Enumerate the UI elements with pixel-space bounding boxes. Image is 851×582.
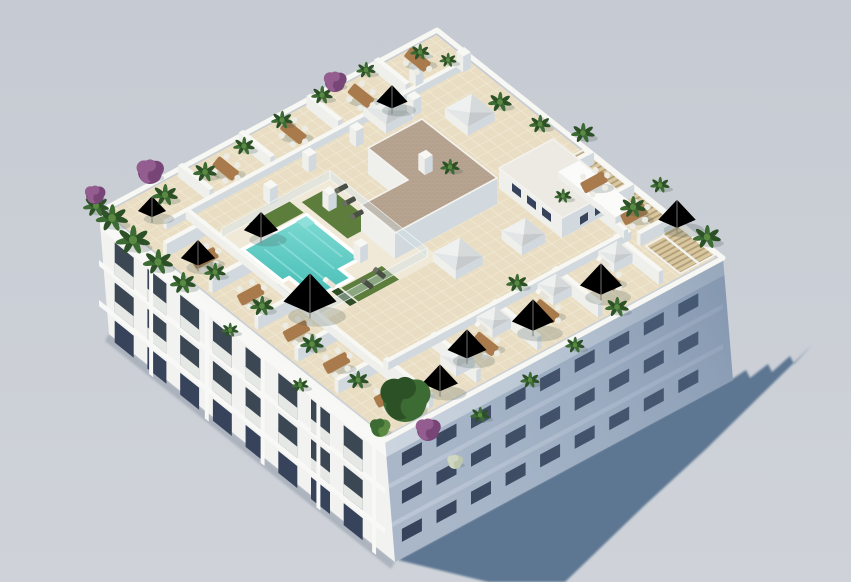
- palm-crown: [259, 303, 265, 309]
- palm-crown: [228, 328, 232, 332]
- palm-crown: [212, 269, 217, 274]
- chair: [249, 279, 255, 285]
- chair: [426, 66, 432, 72]
- facade-pillar: [316, 399, 320, 510]
- chair: [604, 172, 610, 178]
- parasol-shadow: [517, 325, 563, 341]
- palm-crown: [298, 383, 302, 387]
- chair: [323, 354, 329, 360]
- shrub-tuft: [423, 418, 434, 429]
- palm-crown: [580, 130, 586, 136]
- chair: [302, 138, 308, 144]
- chair: [494, 337, 500, 343]
- palm-crown: [561, 194, 565, 198]
- parasol-shadow: [249, 233, 286, 246]
- palm-crown: [180, 280, 186, 286]
- palm-crown: [537, 121, 542, 126]
- chair: [234, 162, 240, 168]
- palm-crown: [418, 50, 423, 55]
- chair: [222, 178, 228, 184]
- palm-crown: [129, 236, 137, 244]
- chair: [302, 126, 308, 132]
- palm-crown: [309, 341, 315, 347]
- chair: [555, 317, 561, 323]
- palm-crown: [202, 169, 208, 175]
- palm-crown: [154, 258, 161, 265]
- chair: [602, 185, 608, 191]
- shrub-tuft: [144, 159, 156, 171]
- chair: [590, 191, 596, 197]
- palm-crown: [364, 68, 369, 73]
- chair: [335, 348, 341, 354]
- palm-crown: [614, 304, 620, 310]
- chair: [373, 388, 379, 394]
- chair: [332, 372, 338, 378]
- chair: [282, 322, 288, 328]
- palm-crown: [573, 343, 578, 348]
- facade-pillar: [261, 355, 265, 466]
- chair: [370, 89, 376, 95]
- chair: [261, 284, 267, 290]
- chair: [223, 153, 229, 159]
- palm-crown: [162, 192, 168, 198]
- chair: [403, 60, 409, 66]
- chair: [359, 80, 365, 86]
- chair: [344, 365, 350, 371]
- architectural-render: Apartment building rooftop – aerial 3D r…: [0, 0, 851, 582]
- render-image: Apartment building rooftop – aerial 3D r…: [0, 0, 851, 582]
- parasol-shadow: [453, 354, 496, 369]
- chair: [237, 286, 243, 292]
- shrub-tuft: [330, 72, 340, 82]
- palm-crown: [630, 204, 636, 210]
- chair: [494, 350, 500, 356]
- palm-crown: [108, 214, 116, 222]
- palm-crown: [528, 378, 533, 383]
- chair: [370, 102, 376, 108]
- chair: [292, 340, 298, 346]
- palm-crown: [279, 117, 284, 122]
- chair: [279, 133, 285, 139]
- palm-crown: [514, 280, 519, 285]
- facade-pillar: [205, 310, 209, 421]
- chair: [346, 96, 352, 102]
- chair: [630, 223, 636, 229]
- shrub-tuft: [452, 455, 459, 462]
- palm-crown: [241, 143, 246, 148]
- chair: [555, 305, 561, 311]
- chair: [289, 141, 295, 147]
- palm-crown: [319, 92, 324, 97]
- chair: [580, 174, 586, 180]
- facade-pillar: [372, 444, 376, 555]
- shrub-tuft: [91, 186, 100, 195]
- chair: [357, 105, 363, 111]
- chair: [592, 167, 598, 173]
- palm-crown: [478, 413, 483, 418]
- chair: [414, 69, 420, 75]
- palm-crown: [446, 58, 450, 62]
- partition-wall-se-face: [659, 270, 663, 285]
- palm-crown: [355, 377, 360, 382]
- palm-crown: [497, 99, 503, 105]
- chair: [642, 217, 648, 223]
- shrub-tuft: [376, 419, 385, 428]
- partition-wall-se-face: [476, 368, 480, 383]
- shrub-tuft: [394, 377, 416, 399]
- chair: [347, 353, 353, 359]
- facade-pillar: [149, 266, 153, 377]
- chair: [616, 272, 622, 278]
- chair: [215, 248, 221, 254]
- palm-crown: [704, 234, 711, 241]
- chair: [234, 175, 240, 181]
- palm-crown: [448, 165, 453, 170]
- parasol-shadow: [427, 387, 466, 401]
- palm-crown: [658, 183, 663, 188]
